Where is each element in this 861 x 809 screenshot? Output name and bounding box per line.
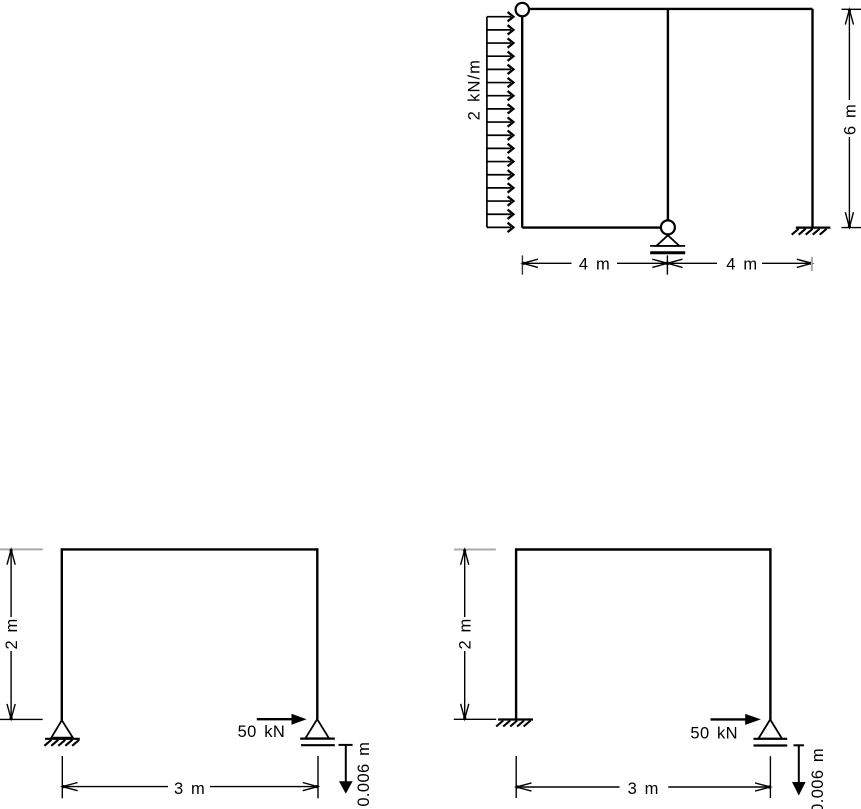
svg-text:4 m: 4 m [579,255,610,273]
svg-text:0.006 m: 0.006 m [355,742,373,807]
svg-text:3 m: 3 m [628,780,659,798]
svg-text:50 kN: 50 kN [690,724,738,742]
svg-text:4 m: 4 m [726,255,757,273]
svg-text:2 m: 2 m [456,618,474,649]
svg-text:50 kN: 50 kN [238,723,286,741]
svg-text:6 m: 6 m [841,104,859,135]
svg-text:2 m: 2 m [3,618,21,649]
svg-text:2 kN/m: 2 kN/m [465,59,483,120]
svg-text:0.006 m: 0.006 m [809,748,827,809]
svg-text:3 m: 3 m [174,780,205,798]
